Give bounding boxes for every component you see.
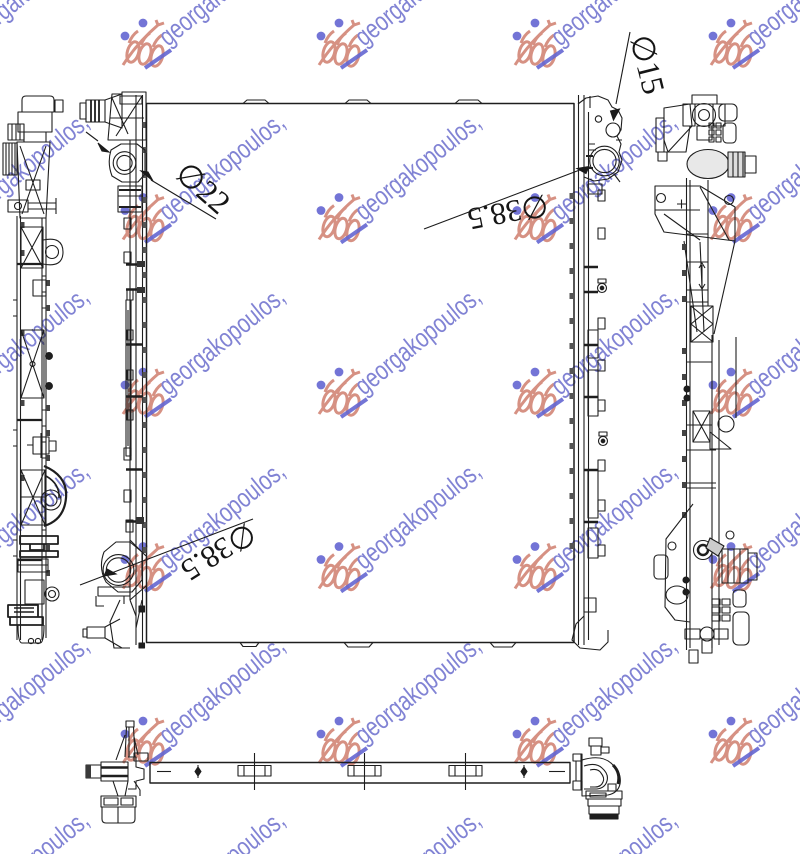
svg-text:∅38.5: ∅38.5 bbox=[465, 187, 551, 237]
svg-text:∅15: ∅15 bbox=[623, 31, 672, 98]
